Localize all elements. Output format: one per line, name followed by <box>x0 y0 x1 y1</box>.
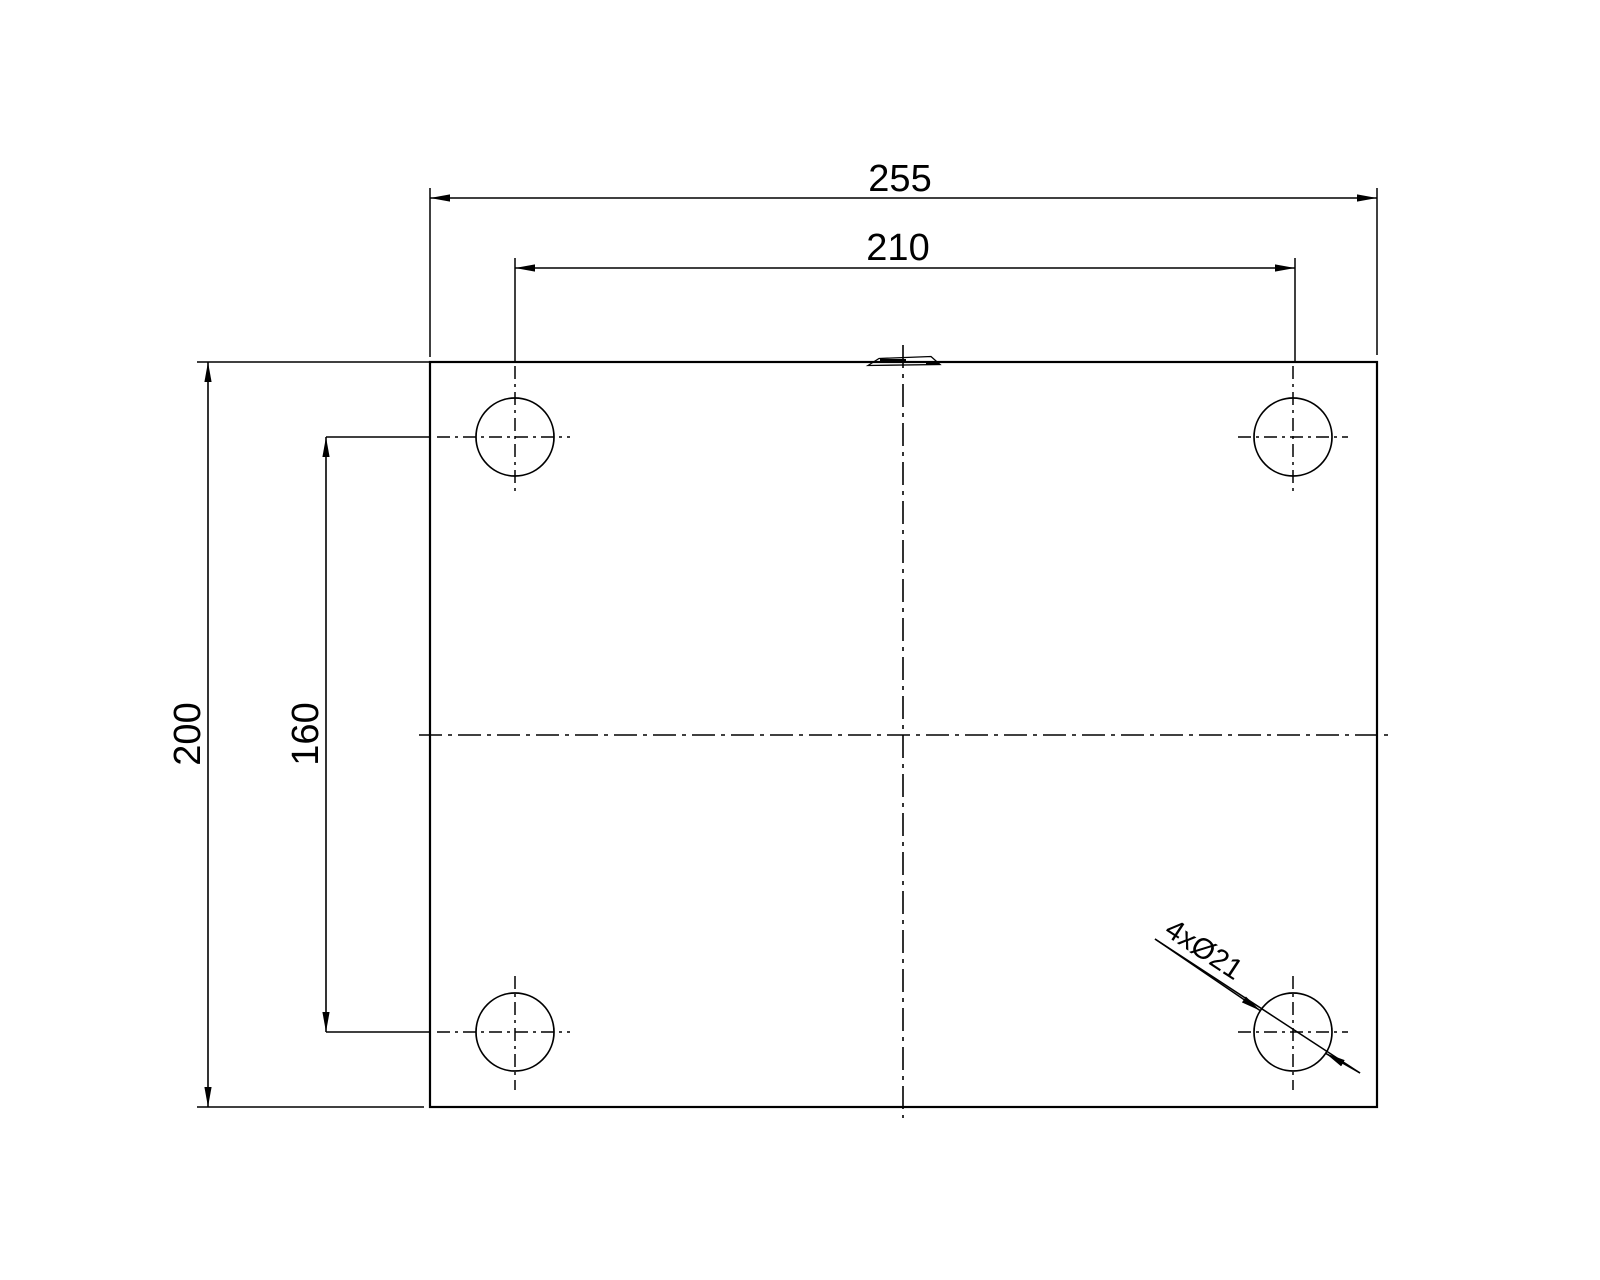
dim-text-hole-pitch-horizontal: 210 <box>866 227 929 269</box>
dim-text-overall-width: 255 <box>868 158 931 200</box>
callout-arrow-lower <box>1326 1053 1360 1073</box>
dimension-hole-pitch-horizontal: 210 <box>515 227 1295 362</box>
engineering-drawing: 255 210 200 160 4xØ21 <box>0 0 1600 1280</box>
dimension-hole-pitch-vertical: 160 <box>285 437 429 1032</box>
dim-text-overall-height: 200 <box>167 702 209 765</box>
dim-text-hole-pitch-vertical: 160 <box>285 702 327 765</box>
hole-centerlines <box>437 366 1348 1090</box>
drawing-sheet: 255 210 200 160 4xØ21 <box>0 0 1600 1280</box>
